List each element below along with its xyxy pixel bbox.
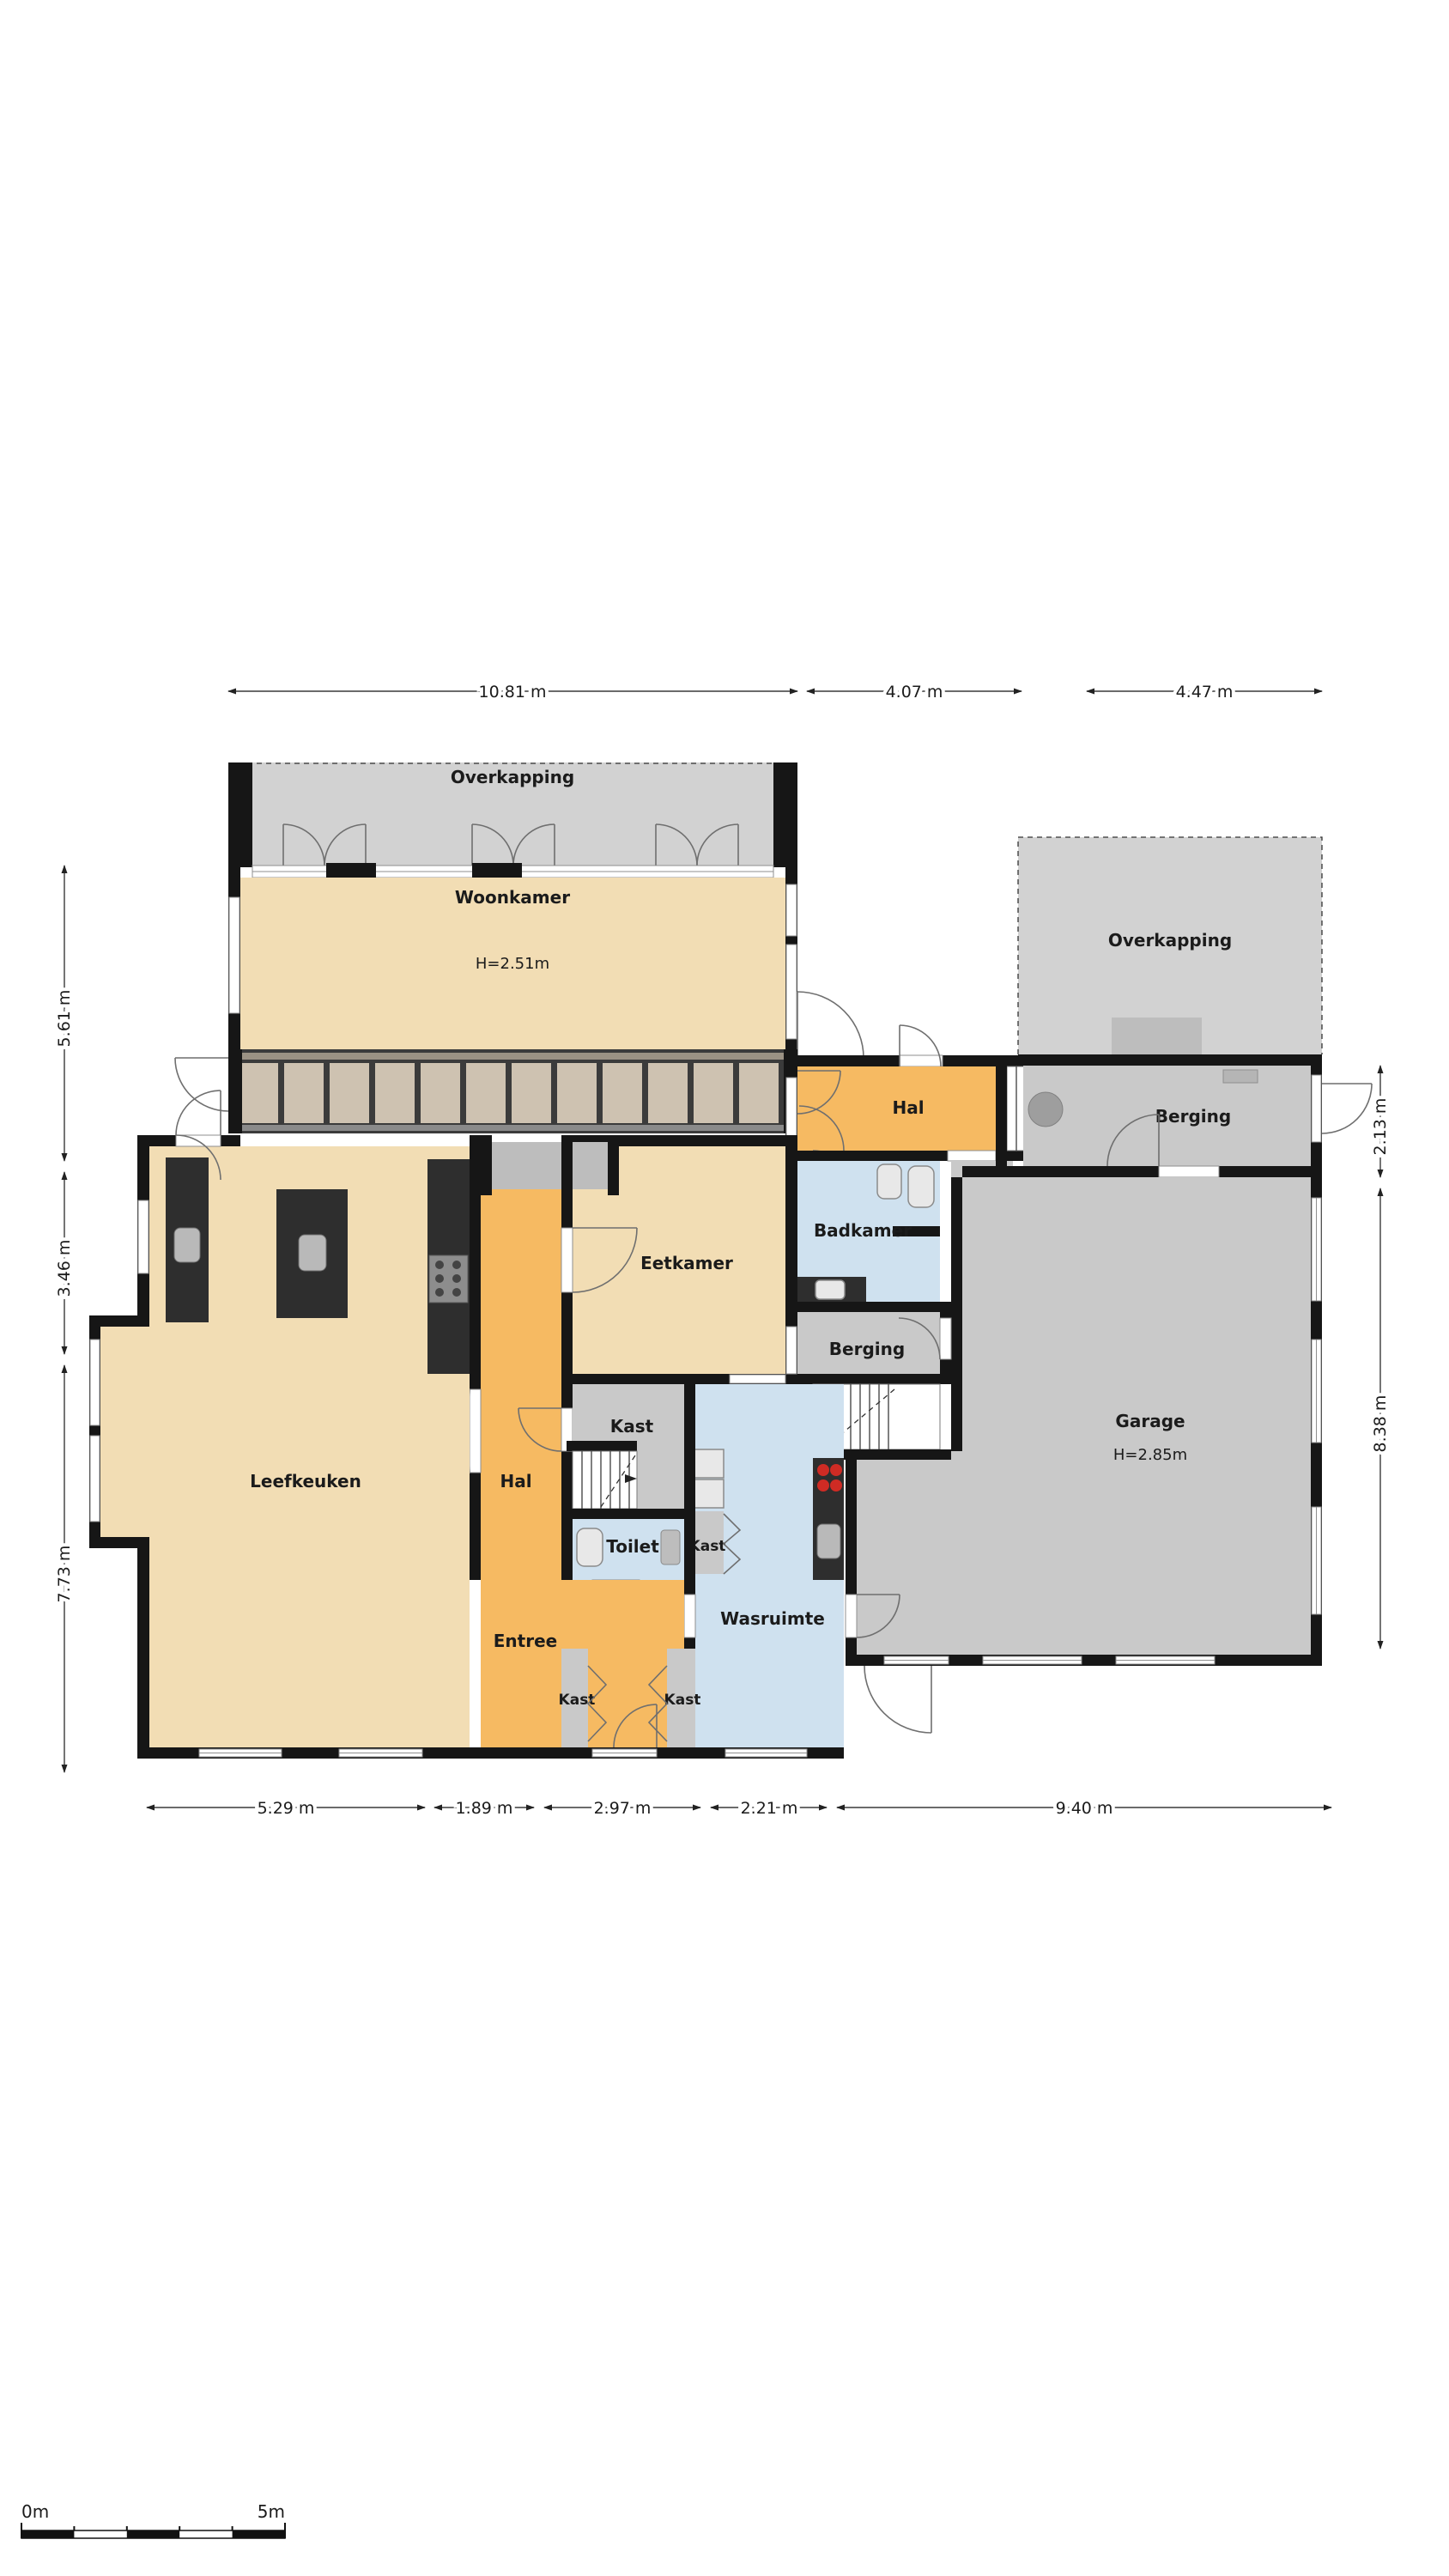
garage-south-windows [884, 1656, 1215, 1664]
toilet: Toilet [573, 1519, 684, 1580]
wall [481, 1135, 492, 1195]
kast-top-door [948, 1151, 996, 1161]
dim-right-1: 2.13 m [1371, 1098, 1390, 1156]
woonkamer-north-glass-wall [252, 863, 773, 879]
dim-left-3: 7.73 m [55, 1546, 74, 1603]
doormat [492, 1142, 608, 1189]
wall [785, 1302, 951, 1312]
leefkeuken-label: Leefkeuken [250, 1471, 361, 1492]
wall [962, 1166, 1322, 1177]
eetkamer-label: Eetkamer [640, 1253, 733, 1273]
wall [785, 1374, 951, 1384]
overkapping-top: Overkapping [228, 762, 797, 867]
scale-bar: 0m 5m [21, 2501, 285, 2538]
leefkeuken-west-window [138, 1200, 149, 1273]
dryer [692, 1479, 724, 1508]
berging-small: Berging [797, 1312, 951, 1374]
wasruimte: Kast Wasruimte [689, 1384, 844, 1747]
sliding-glass-wall [175, 1049, 797, 1133]
eetkamer-south-window [730, 1375, 785, 1383]
wasruimte-sink [817, 1524, 840, 1558]
washer [692, 1449, 724, 1478]
toilet-label: Toilet [606, 1536, 659, 1557]
wall [561, 1509, 695, 1519]
wall [470, 1135, 481, 1580]
toilet-basin [661, 1530, 680, 1564]
gas-hob [429, 1255, 468, 1303]
wall [137, 1548, 149, 1759]
berging-door [1159, 1166, 1219, 1177]
dim-left-2: 3.46 m [55, 1240, 74, 1297]
kast-entree-right-label: Kast [664, 1692, 701, 1709]
dim-right-2: 8.38 m [1371, 1395, 1390, 1453]
floorplan-page: Overkapping Woonkamer H=2.51m [0, 0, 1449, 2576]
garage-height-label: H=2.85m [1113, 1446, 1187, 1464]
hal-corridor-label: Hal [500, 1471, 531, 1492]
dim-bottom-3: 2.97 m [594, 1799, 652, 1818]
boiler [1028, 1092, 1063, 1127]
woonkamer-porch-door [786, 945, 797, 1039]
wall-cabinet [1223, 1070, 1258, 1083]
eetkamer-east-window [786, 1327, 797, 1374]
hal-corridor: Hal [481, 1146, 561, 1580]
wasruimte-door [684, 1595, 695, 1637]
wall [1018, 1054, 1322, 1066]
porch-door-arc [797, 992, 864, 1058]
berging-exterior-door-arc [1322, 1084, 1372, 1133]
leefkeuken: Leefkeuken [100, 1146, 470, 1747]
dim-top-3: 4.47 m [1176, 683, 1234, 702]
washbasin [815, 1280, 845, 1299]
badkamer: Badkamer [797, 1161, 940, 1302]
toilet-fixture [577, 1528, 603, 1566]
berging-small-label: Berging [829, 1339, 905, 1359]
berging-right-label: Berging [1155, 1106, 1231, 1127]
wasruimte-counter [813, 1458, 844, 1580]
badkamer-label: Badkamer [814, 1220, 912, 1241]
entree: Entree Kast Kast [481, 1580, 700, 1747]
hal-top-label: Hal [892, 1097, 924, 1118]
dim-bottom-2: 1.89 m [456, 1799, 513, 1818]
woonkamer: Woonkamer H=2.51m [240, 878, 785, 1049]
dim-top-2: 4.07 m [886, 683, 943, 702]
woonkamer-label: Woonkamer [455, 887, 570, 908]
berging-right: Berging [1023, 1066, 1311, 1166]
dim-bottom-4: 2.21 m [741, 1799, 798, 1818]
overkapping-right-label: Overkapping [1108, 930, 1232, 951]
dim-bottom-1: 5.29 m [258, 1799, 315, 1818]
woonkamer-height-label: H=2.51m [476, 955, 549, 973]
garage-side-door [846, 1595, 857, 1637]
kast-mid-label: Kast [610, 1416, 654, 1437]
scale-start-label: 0m [21, 2501, 49, 2522]
overkapping-top-label: Overkapping [451, 767, 574, 787]
kitchen-sink [174, 1228, 200, 1262]
floorplan-drawing: Overkapping Woonkamer H=2.51m [0, 0, 1449, 2576]
woonkamer-east-window [786, 884, 797, 936]
island-sink [299, 1235, 326, 1271]
bay-window-2 [90, 1436, 100, 1522]
leefkeuken-double-door [470, 1389, 481, 1473]
entree-label: Entree [494, 1631, 557, 1651]
bay-window-1 [90, 1340, 100, 1425]
bidet-fixture [908, 1166, 934, 1207]
wall [89, 1537, 149, 1548]
dim-bottom-5: 9.40 m [1056, 1799, 1113, 1818]
toilet-fixture [877, 1164, 901, 1199]
overkapping-right: Overkapping [1018, 837, 1322, 1054]
wall [608, 1135, 619, 1195]
garage-exit-door-arc [864, 1666, 931, 1733]
dim-left-1: 5.61 m [55, 990, 74, 1048]
eetkamer-door [561, 1228, 573, 1292]
wasruimte-label: Wasruimte [720, 1608, 825, 1629]
dim-top-1: 10.81 m [479, 683, 547, 702]
kast-mid: Kast [567, 1384, 684, 1509]
garage-label: Garage [1115, 1411, 1185, 1431]
scale-end-label: 5m [258, 2501, 285, 2522]
woonkamer-west-window [229, 897, 239, 1013]
wall [951, 1177, 962, 1451]
